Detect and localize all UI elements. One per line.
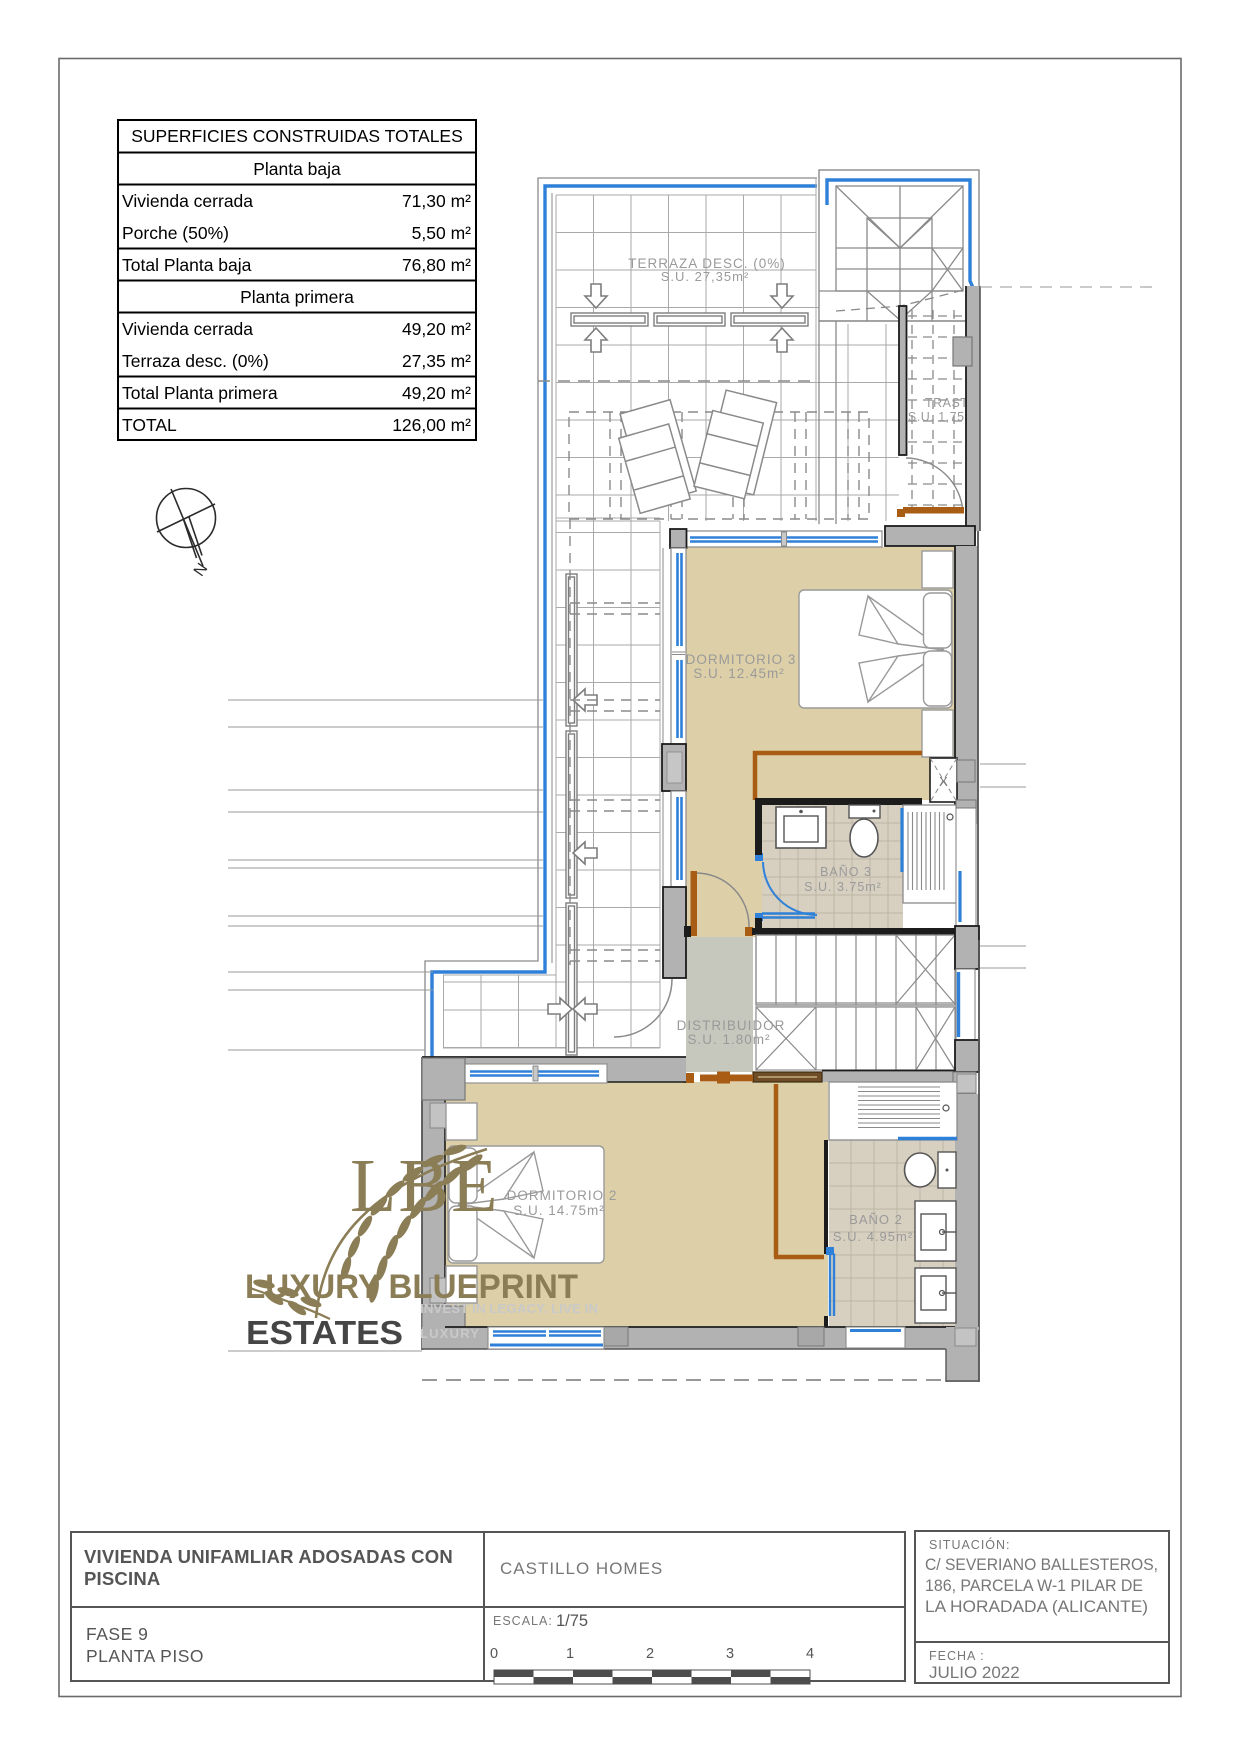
svg-text:Porche (50%): Porche (50%) [122,223,229,243]
svg-text:BAÑO 3: BAÑO 3 [820,865,872,879]
svg-text:S.U. 4.95m²: S.U. 4.95m² [833,1229,913,1244]
svg-text:JULIO 2022: JULIO 2022 [929,1663,1020,1682]
svg-text:LA HORADADA (ALICANTE): LA HORADADA (ALICANTE) [925,1598,1148,1616]
svg-text:S.U. 12.45m²: S.U. 12.45m² [693,666,785,681]
svg-text:3: 3 [726,1646,734,1662]
svg-text:Terraza desc. (0%): Terraza desc. (0%) [122,351,269,371]
svg-text:S.U. 27,35m²: S.U. 27,35m² [661,269,750,284]
svg-text:TOTAL: TOTAL [122,415,177,435]
svg-text:126,00 m²: 126,00 m² [392,415,471,435]
svg-text:71,30 m²: 71,30 m² [402,191,471,211]
svg-text:S.U. 1.80m²: S.U. 1.80m² [687,1032,770,1047]
svg-text:VIVIENDA UNIFAMLIAR ADOSADAS C: VIVIENDA UNIFAMLIAR ADOSADAS CON [84,1546,453,1567]
svg-text:Vivienda cerrada: Vivienda cerrada [122,191,253,211]
svg-text:DORMITORIO 2: DORMITORIO 2 [507,1188,618,1203]
svg-text:CASTILLO HOMES: CASTILLO HOMES [500,1559,663,1578]
svg-text:76,80 m²: 76,80 m² [402,255,471,275]
svg-text:BAÑO 2: BAÑO 2 [849,1212,903,1227]
svg-text:LUXURY: LUXURY [420,1326,480,1341]
svg-text:PISCINA: PISCINA [84,1568,160,1589]
svg-text:1: 1 [566,1646,574,1662]
svg-text:SITUACIÓN:: SITUACIÓN: [929,1537,1011,1552]
svg-text:Total Planta primera: Total Planta primera [122,383,278,403]
svg-text:FASE 9: FASE 9 [86,1624,148,1644]
svg-text:Total Planta baja: Total Planta baja [122,255,252,275]
svg-text:DISTRIBUIDOR: DISTRIBUIDOR [677,1018,786,1033]
svg-text:5,50 m²: 5,50 m² [412,223,471,243]
svg-text:27,35 m²: 27,35 m² [402,351,471,371]
svg-text:TRAST.: TRAST. [925,396,971,410]
svg-text:S.U. 14.75m²: S.U. 14.75m² [513,1203,605,1218]
svg-text:Vivienda cerrada: Vivienda cerrada [122,319,253,339]
svg-text:N: N [191,560,212,579]
svg-text:4: 4 [806,1646,814,1662]
svg-text:SUPERFICIES CONSTRUIDAS TOTALE: SUPERFICIES CONSTRUIDAS TOTALES [131,126,463,146]
svg-text:X: X [939,774,948,789]
svg-text:2: 2 [646,1646,654,1662]
svg-text:ESTATES: ESTATES [246,1314,403,1351]
svg-text:C/ SEVERIANO BALLESTEROS,: C/ SEVERIANO BALLESTEROS, [925,1556,1158,1574]
svg-text:S.U. 3.75m²: S.U. 3.75m² [804,880,882,894]
svg-text:INVEST IN LEGACY. LIVE IN: INVEST IN LEGACY. LIVE IN [420,1301,598,1316]
svg-text:0: 0 [490,1646,498,1662]
svg-text:DORMITORIO 3: DORMITORIO 3 [686,652,797,667]
svg-text:ESCALA:: ESCALA: [493,1614,553,1628]
svg-text:FECHA :: FECHA : [929,1649,985,1663]
svg-text:PLANTA PISO: PLANTA PISO [86,1646,204,1666]
svg-text:Planta primera: Planta primera [240,287,354,307]
svg-text:49,20 m²: 49,20 m² [402,319,471,339]
svg-text:1/75: 1/75 [556,1612,588,1630]
svg-text:186, PARCELA W-1 PILAR DE: 186, PARCELA W-1 PILAR DE [925,1577,1143,1595]
svg-text:49,20 m²: 49,20 m² [402,383,471,403]
svg-text:Planta baja: Planta baja [253,159,341,179]
